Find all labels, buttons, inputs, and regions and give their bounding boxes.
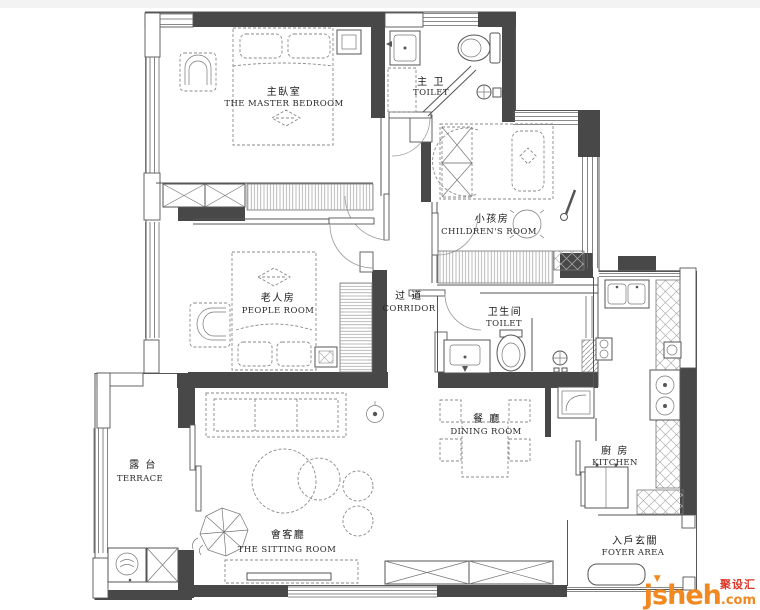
label-master-bath-cn: 主 卫 bbox=[417, 76, 445, 88]
closet bbox=[163, 184, 373, 210]
children-wardrobe bbox=[438, 251, 584, 283]
label-master-bedroom-cn: 主臥室 bbox=[267, 85, 302, 98]
label-dining-cn: 餐 廳 bbox=[473, 412, 501, 425]
floor-plan-canvas: 主臥室 THE MASTER BEDROOM 主 卫 TOILET 小孩房 CH… bbox=[0, 0, 760, 610]
toilet-sink bbox=[444, 340, 490, 373]
corner-basin bbox=[558, 387, 594, 418]
kitchen-sliding-door bbox=[576, 441, 585, 506]
sofa bbox=[206, 393, 346, 437]
kitchen-sink bbox=[605, 280, 649, 308]
kitchen-lower-counter bbox=[637, 490, 683, 514]
foyer-furniture bbox=[588, 564, 645, 585]
master-bath-fixtures bbox=[386, 31, 501, 116]
dining-chair bbox=[509, 439, 530, 461]
label-master-bath-en: TOILET bbox=[413, 88, 449, 98]
tap-icon bbox=[553, 351, 567, 372]
coffee-table bbox=[252, 449, 340, 513]
bath-sink bbox=[386, 31, 420, 65]
counter-appliance bbox=[664, 342, 681, 358]
label-children-cn: 小孩房 bbox=[475, 212, 510, 225]
label-foyer-en: FOYER AREA bbox=[602, 548, 665, 558]
label-terrace-cn: 露 台 bbox=[129, 458, 157, 471]
floor-plan-drawing: 主臥室 THE MASTER BEDROOM 主 卫 TOILET 小孩房 CH… bbox=[0, 0, 760, 610]
stove bbox=[650, 370, 680, 420]
gas-meter bbox=[596, 338, 612, 360]
child-bed bbox=[433, 124, 553, 199]
label-sitting-cn: 會客廳 bbox=[271, 528, 306, 541]
label-toilet-en: TOILET bbox=[486, 319, 522, 329]
kitchen-fixtures bbox=[558, 280, 683, 514]
side-table bbox=[343, 506, 373, 536]
label-corridor-cn: 过 道 bbox=[395, 289, 423, 302]
people-wardrobe bbox=[340, 283, 372, 372]
label-master-bedroom-en: THE MASTER BEDROOM bbox=[224, 99, 343, 109]
terrace-cabinet bbox=[147, 548, 178, 582]
page-top-band bbox=[0, 0, 760, 8]
label-kitchen-en: KITCHEN bbox=[592, 458, 638, 468]
children-room-furniture bbox=[433, 124, 584, 283]
side-table bbox=[343, 471, 373, 501]
nightstand bbox=[315, 347, 337, 367]
jsheh-watermark: ▼ 聚设汇 jsheh.com bbox=[644, 582, 756, 609]
logo-drop-icon: ▼ bbox=[654, 575, 661, 584]
label-dining-en: DINING ROOM bbox=[450, 427, 521, 437]
label-sitting-en: THE SITTING ROOM bbox=[238, 545, 336, 555]
dining-chair bbox=[440, 439, 461, 461]
storage-cabinets bbox=[385, 561, 553, 584]
toilet-wc bbox=[497, 330, 525, 371]
wall-rod bbox=[561, 190, 576, 221]
bath-toilet bbox=[458, 33, 500, 63]
logo-name: jsheh bbox=[644, 580, 721, 610]
dining-chair bbox=[509, 400, 530, 422]
bath-cabinet bbox=[388, 68, 416, 112]
label-people-en: PEOPLE ROOM bbox=[242, 306, 315, 316]
toilet-fixtures bbox=[444, 330, 567, 373]
shower-head-icon bbox=[477, 85, 501, 99]
label-kitchen-cn: 廚 房 bbox=[601, 444, 629, 457]
armchair bbox=[190, 303, 230, 347]
dining-chair bbox=[440, 400, 461, 422]
label-corridor-en: CORRIDOR bbox=[382, 304, 435, 314]
label-terrace-en: TERRACE bbox=[117, 474, 163, 484]
tv-cabinet bbox=[225, 560, 358, 583]
dining-furniture bbox=[440, 400, 530, 477]
label-toilet-cn: 卫生间 bbox=[488, 305, 523, 318]
floor-drain-icon bbox=[367, 401, 384, 423]
label-children-en: CHILDREN'S ROOM bbox=[441, 227, 537, 237]
logo-cn-text: 聚设汇 bbox=[720, 579, 756, 590]
entry-bench bbox=[588, 564, 645, 585]
washing-machine bbox=[108, 548, 146, 582]
terrace-furniture bbox=[108, 548, 178, 582]
logo-tld: .com bbox=[721, 593, 756, 608]
fridge bbox=[585, 464, 628, 509]
nightstand bbox=[337, 30, 361, 54]
label-foyer-cn: 入戶玄關 bbox=[612, 534, 658, 547]
terrace-sliding-door bbox=[190, 425, 201, 511]
label-people-cn: 老人房 bbox=[261, 291, 296, 304]
armchair bbox=[180, 53, 216, 91]
